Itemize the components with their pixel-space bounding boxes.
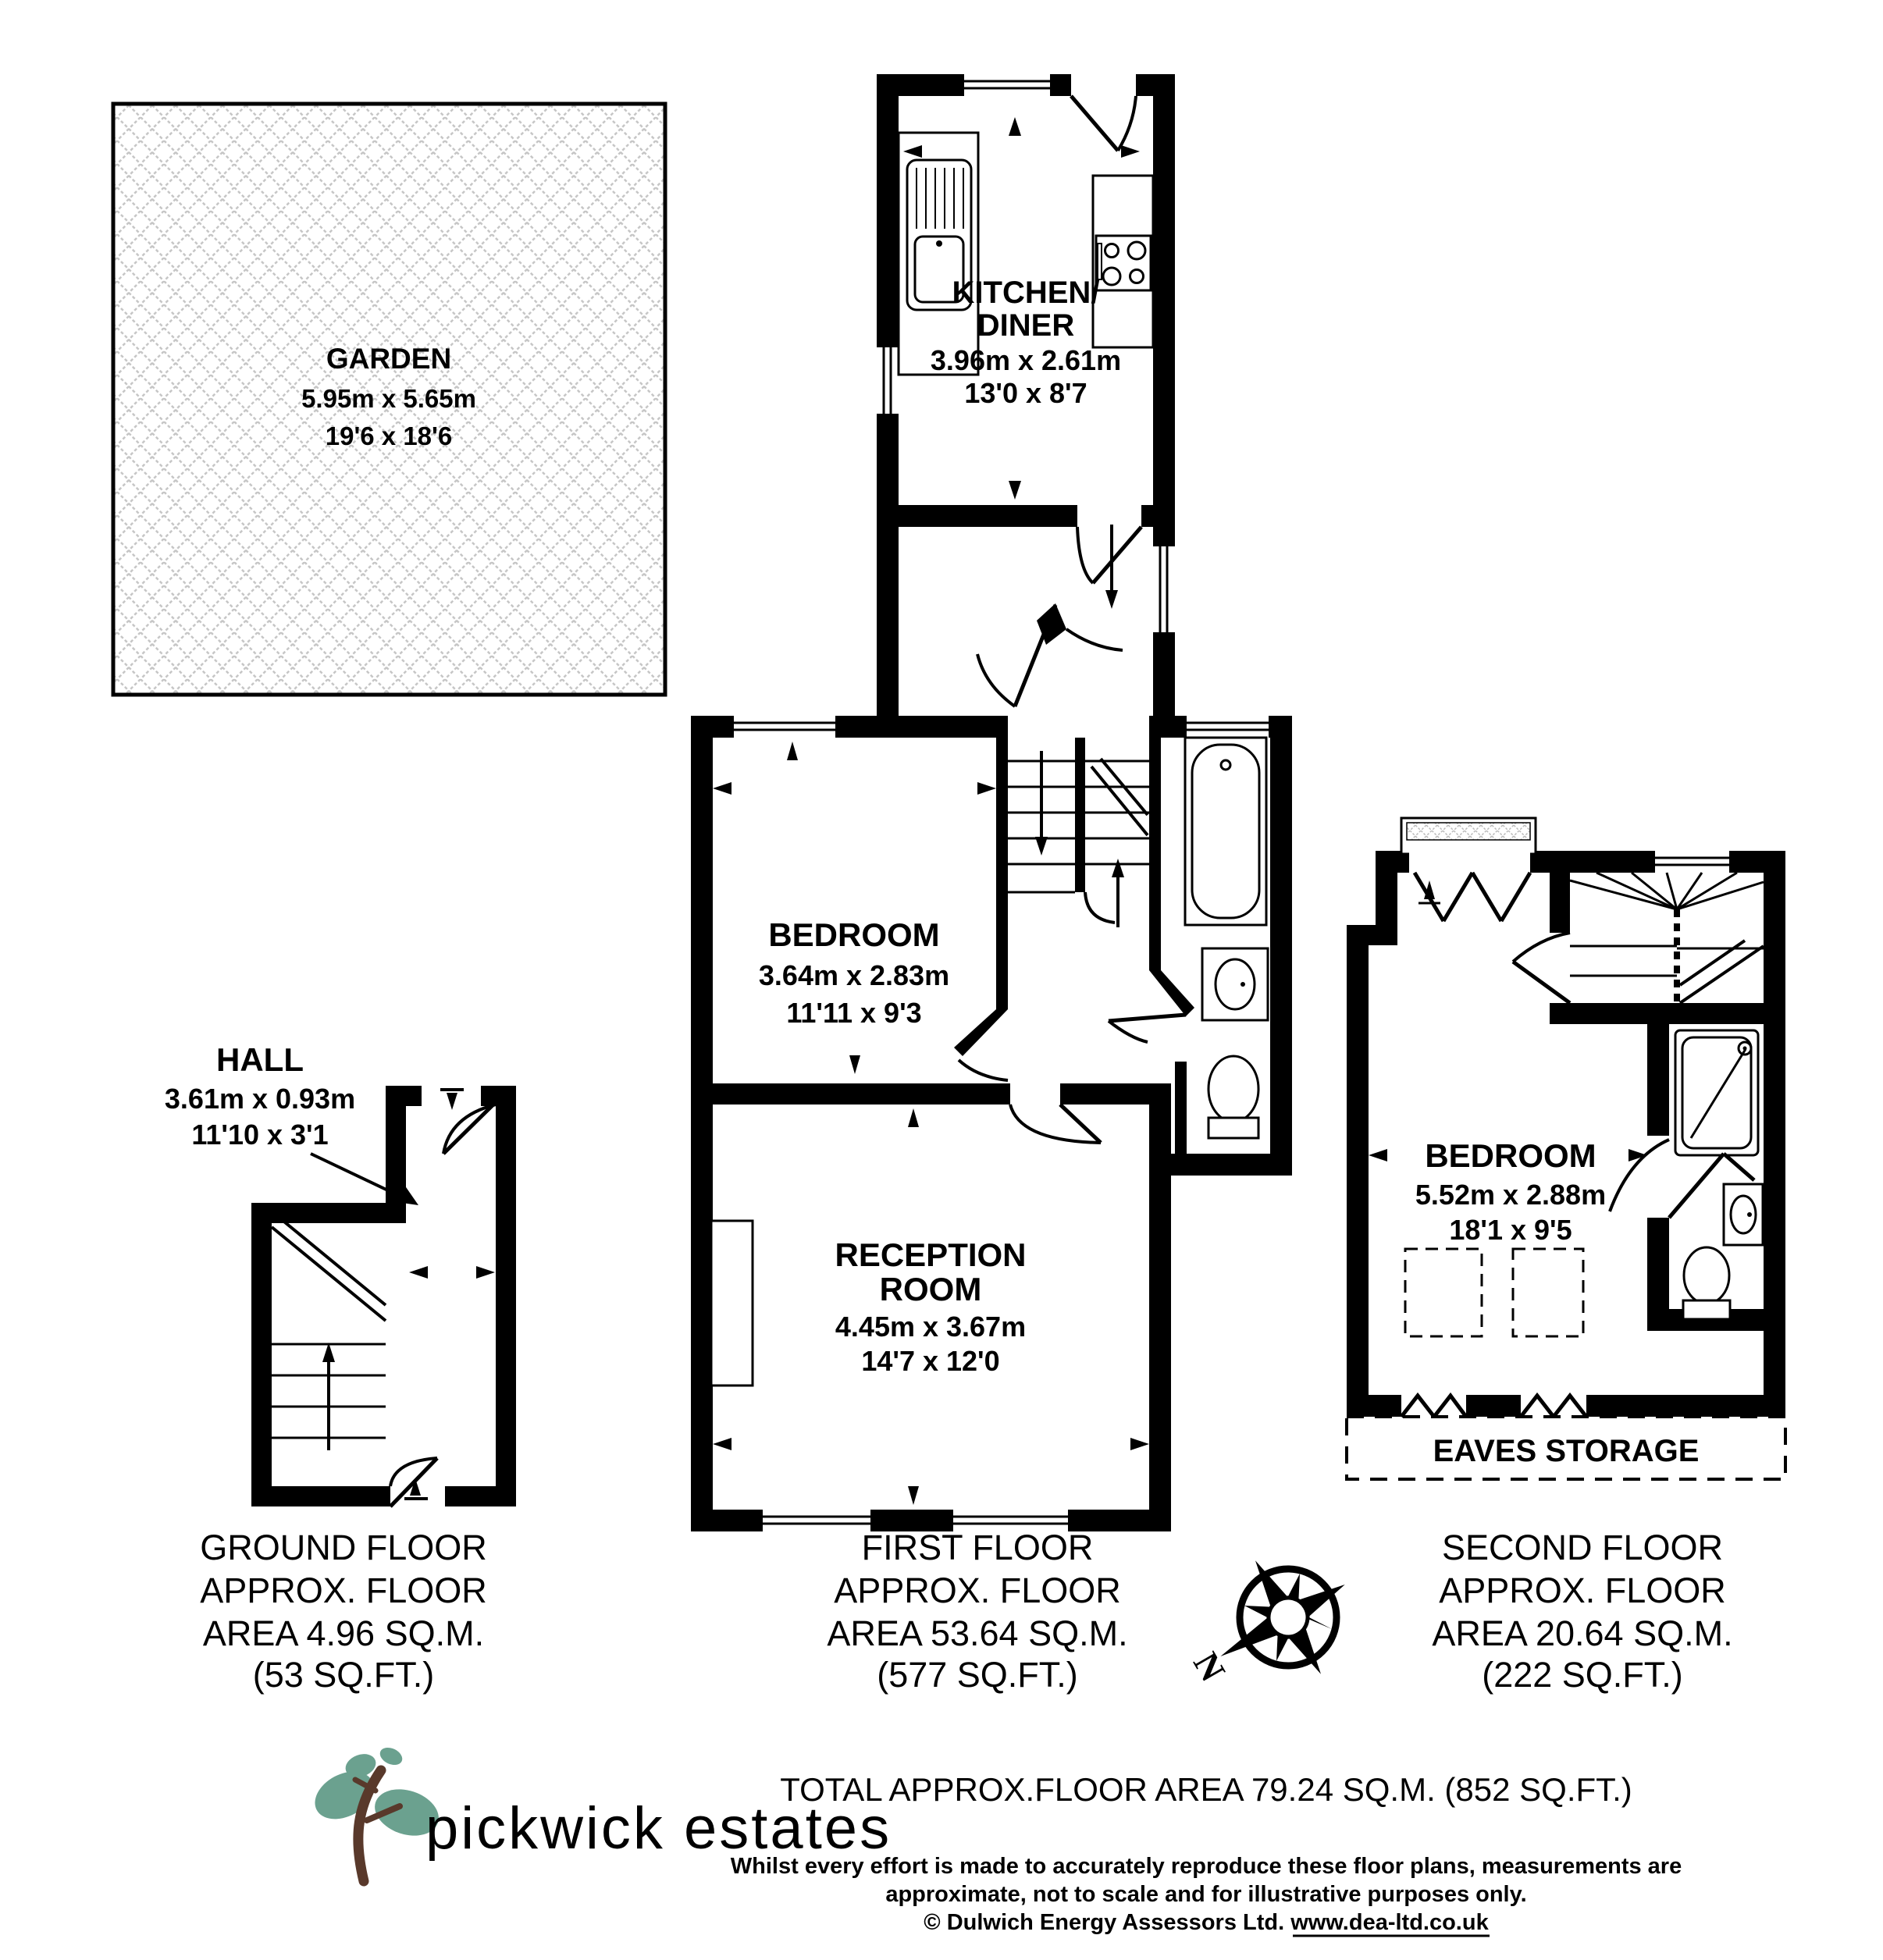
copyright-text[interactable]: © Dulwich Energy Assessors Ltd. www.dea-… xyxy=(924,1910,1489,1935)
wall-segment xyxy=(1149,1105,1171,1531)
up-arrow-icon xyxy=(322,1343,335,1362)
kitchen-title-1: KITCHEN/ xyxy=(952,276,1100,310)
disclaimer-line-2: approximate, not to scale and for illust… xyxy=(885,1882,1526,1907)
down-arrow-icon xyxy=(1035,837,1048,855)
wall-segment xyxy=(1647,1024,1669,1136)
first-caption-4: (577 SQ.FT.) xyxy=(877,1655,1078,1695)
hall-title: HALL xyxy=(216,1041,304,1078)
disclaimer-line-1: Whilst every effort is made to accuratel… xyxy=(731,1854,1682,1879)
staircase-first xyxy=(1008,738,1149,927)
door-leaf xyxy=(1109,1015,1186,1021)
measure-arrow-left-icon xyxy=(1369,1149,1387,1161)
door-arc xyxy=(959,1060,1008,1080)
door-opening xyxy=(1010,1083,1060,1105)
first-caption-3: AREA 53.64 SQ.M. xyxy=(827,1613,1127,1653)
bedroom2-title: BEDROOM xyxy=(1425,1137,1596,1174)
door-leaf xyxy=(443,1102,496,1154)
staircase-second xyxy=(1570,873,1764,1003)
measure-arrow-right-icon xyxy=(977,782,996,795)
second-caption-2: APPROX. FLOOR xyxy=(1439,1570,1726,1610)
wall-segment xyxy=(1270,716,1292,1176)
eaves-storage-label: EAVES STORAGE xyxy=(1433,1434,1700,1468)
stair-rail xyxy=(1091,767,1148,835)
floor-captions: GROUND FLOOR APPROX. FLOOR AREA 4.96 SQ.… xyxy=(200,1528,1732,1695)
ground-floor-plan: HALL 3.61m x 0.93m 11'10 x 3'1 xyxy=(165,1041,516,1506)
ground-caption-1: GROUND FLOOR xyxy=(200,1528,487,1567)
reception-dim-imperial: 14'7 x 12'0 xyxy=(861,1345,999,1377)
measure-arrow-down-icon xyxy=(908,1486,919,1505)
shower-icon xyxy=(1675,1030,1758,1155)
second-caption-1: SECOND FLOOR xyxy=(1442,1528,1723,1567)
skylight-outline xyxy=(1405,1249,1482,1336)
door-jamb xyxy=(954,1009,1008,1056)
measure-arrow-right-icon xyxy=(1628,1149,1647,1161)
door-leaf xyxy=(1724,1154,1754,1180)
hob-icon xyxy=(1093,176,1153,347)
bedroom2-dim-metric: 5.52m x 2.88m xyxy=(1415,1179,1606,1211)
wall-segment xyxy=(1376,851,1397,930)
basin-icon xyxy=(1202,948,1268,1020)
door-arc xyxy=(1010,1105,1101,1143)
hall-dim-metric: 3.61m x 0.93m xyxy=(165,1083,355,1115)
stair-rail xyxy=(272,1211,386,1305)
kitchen-dim-imperial: 13'0 x 8'7 xyxy=(964,377,1087,409)
bedroom1-dim-imperial: 11'11 x 9'3 xyxy=(786,997,921,1029)
bath-icon xyxy=(1185,738,1266,925)
wall-segment xyxy=(1550,1003,1785,1024)
window xyxy=(1655,851,1729,873)
floorplan-canvas: GARDEN 5.95m x 5.65m 19'6 x 18'6 xyxy=(0,0,1883,1960)
wall-segment xyxy=(386,1086,406,1203)
measure-arrow-down-icon xyxy=(849,1055,860,1074)
wall-segment xyxy=(996,716,1008,1009)
measure-arrow-down-icon xyxy=(1009,481,1021,500)
measure-arrow-right-icon xyxy=(1130,1438,1149,1450)
measure-arrow-up-icon xyxy=(908,1108,919,1127)
window xyxy=(763,1510,870,1531)
wall-segment xyxy=(691,716,713,1105)
wall-segment xyxy=(1175,1062,1187,1176)
reception-title-1: RECEPTION xyxy=(835,1236,1026,1273)
wall-segment xyxy=(251,1203,272,1506)
window xyxy=(964,74,1050,96)
up-arrow-icon xyxy=(1112,859,1124,877)
door-arc xyxy=(977,654,1015,706)
second-caption-3: AREA 20.64 SQ.M. xyxy=(1432,1613,1732,1653)
wall-segment xyxy=(691,1083,1171,1105)
ground-caption-2: APPROX. FLOOR xyxy=(200,1570,487,1610)
door-arc xyxy=(1066,629,1123,650)
stair-handrail xyxy=(1085,892,1115,923)
door-opening xyxy=(1077,505,1141,527)
wall-segment xyxy=(1764,851,1785,1417)
measure-arrow-up-icon xyxy=(787,742,798,760)
garden-dim-metric: 5.95m x 5.65m xyxy=(301,384,476,413)
garden-dim-imperial: 19'6 x 18'6 xyxy=(326,422,453,450)
garden-plan: GARDEN 5.95m x 5.65m 19'6 x 18'6 xyxy=(113,104,665,695)
compass-rose-icon: N xyxy=(1186,1528,1378,1713)
door-jamb xyxy=(1149,970,1194,1016)
dormer-window xyxy=(1401,818,1536,921)
door-leaf xyxy=(1669,1154,1724,1218)
door-opening xyxy=(1071,74,1136,96)
door-arc xyxy=(1109,1021,1148,1042)
footer: pickwick estates TOTAL APPROX.FLOOR AREA… xyxy=(307,1745,1682,1936)
ground-caption-3: AREA 4.96 SQ.M. xyxy=(203,1613,484,1653)
door-leaf xyxy=(1015,605,1055,706)
door-leaf xyxy=(1093,527,1141,583)
wall-segment xyxy=(1347,925,1369,1417)
bedroom1-dim-metric: 3.64m x 2.83m xyxy=(759,959,949,991)
hall-dim-imperial: 11'10 x 3'1 xyxy=(191,1119,328,1151)
door-leaf xyxy=(1071,96,1118,151)
kitchen-title-2: DINER xyxy=(977,308,1075,343)
reception-title-2: ROOM xyxy=(880,1271,982,1307)
window xyxy=(877,347,899,414)
window xyxy=(1153,546,1175,632)
pickwick-tree-icon xyxy=(307,1745,445,1881)
sink-icon xyxy=(899,133,978,375)
staircase-ground xyxy=(272,1211,386,1450)
measure-arrow-up-icon xyxy=(1009,117,1021,136)
second-caption-4: (222 SQ.FT.) xyxy=(1482,1655,1683,1695)
bedroom1-title: BEDROOM xyxy=(768,916,939,953)
first-caption-1: FIRST FLOOR xyxy=(862,1528,1094,1567)
wall-segment xyxy=(251,1486,516,1506)
wall-segment xyxy=(691,1105,713,1531)
chimney-breast xyxy=(711,1221,753,1386)
door-leaf xyxy=(1060,1105,1101,1143)
door-arc xyxy=(1610,1140,1669,1211)
window xyxy=(734,716,835,738)
total-area-text: TOTAL APPROX.FLOOR AREA 79.24 SQ.M. (852… xyxy=(780,1771,1632,1808)
second-floor-plan: BEDROOM 5.52m x 2.88m 18'1 x 9'5 EAVES S… xyxy=(1347,818,1785,1479)
down-arrow-icon xyxy=(1105,590,1118,609)
toilet-icon xyxy=(1208,1056,1258,1138)
ground-caption-4: (53 SQ.FT.) xyxy=(253,1655,435,1695)
first-caption-2: APPROX. FLOOR xyxy=(834,1570,1121,1610)
garden-title: GARDEN xyxy=(326,343,451,375)
wall-segment xyxy=(1149,716,1161,970)
floorplan-page: GARDEN 5.95m x 5.65m 19'6 x 18'6 xyxy=(0,0,1883,1960)
toilet-icon xyxy=(1683,1247,1730,1319)
wall-segment xyxy=(496,1086,516,1506)
bedroom2-dim-imperial: 18'1 x 9'5 xyxy=(1449,1214,1572,1246)
measure-arrow-left-icon xyxy=(409,1266,428,1279)
door-arc xyxy=(1118,96,1136,151)
measure-arrow-left-icon xyxy=(713,782,731,795)
door-arc xyxy=(1077,527,1093,583)
stair-rail xyxy=(272,1227,386,1321)
measure-arrow-left-icon xyxy=(713,1438,731,1450)
kitchen-dim-metric: 3.96m x 2.61m xyxy=(931,344,1121,376)
measure-arrow-right-icon xyxy=(1121,145,1140,158)
reception-dim-metric: 4.45m x 3.67m xyxy=(835,1311,1026,1343)
window xyxy=(1187,716,1269,738)
first-floor-plan: KITCHEN/ DINER 3.96m x 2.61m 13'0 x 8'7 xyxy=(691,74,1292,1531)
skylight-outline xyxy=(1513,1249,1583,1336)
basin-icon xyxy=(1724,1184,1763,1245)
stair-divider xyxy=(1075,738,1085,892)
measure-arrow-right-icon xyxy=(476,1266,495,1279)
